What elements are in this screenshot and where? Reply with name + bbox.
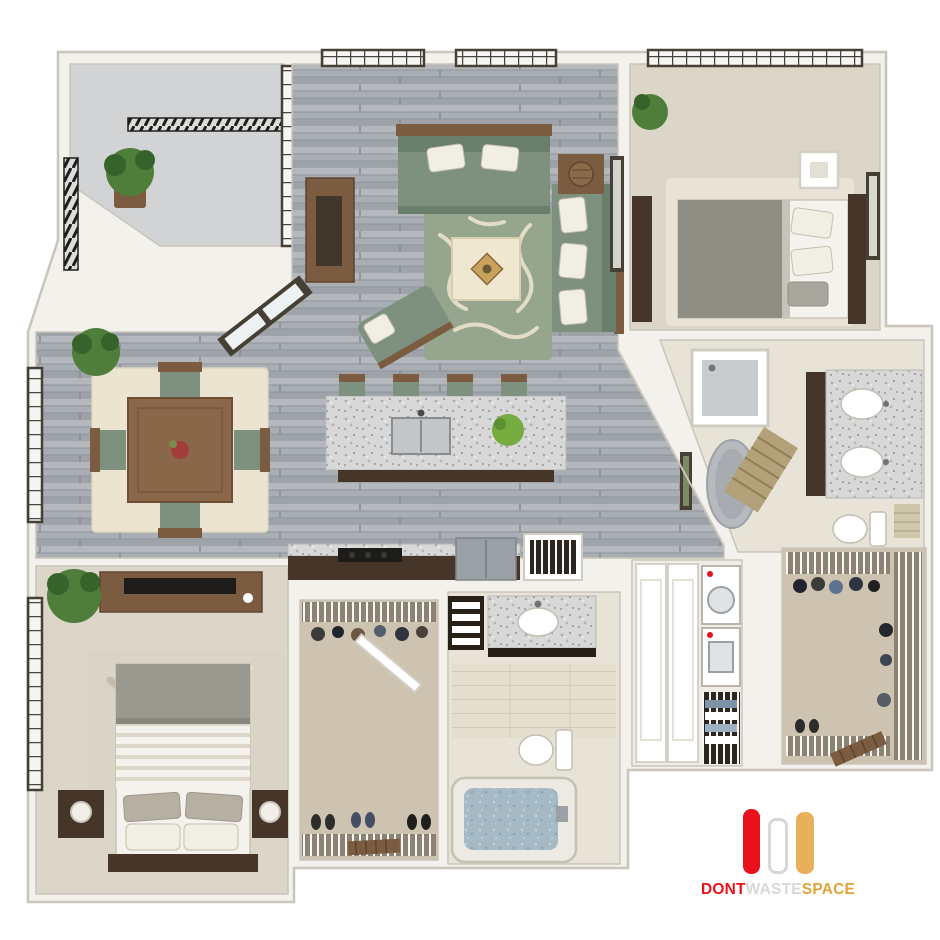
master-bedroom-window [28,598,42,790]
bedroom-2-nightstand [800,152,838,188]
living-window-2 [456,50,556,66]
dontwastespace-logo: DONTWASTESPACE [688,806,868,899]
fridge [456,538,516,580]
hallway-wall-art [680,452,692,510]
bedroom-2-wall-art [866,172,880,260]
dining-set [90,362,270,538]
balcony-railing-left [64,158,78,270]
island-plant [492,414,524,446]
master-headboard [108,854,258,872]
master-nightstand-right [252,790,288,838]
logo-word-space: SPACE [802,881,855,898]
bedroom-2-dresser [632,196,652,322]
linen-shelves [448,596,484,650]
logo-bar-red [743,809,760,874]
master-bed [108,664,258,872]
shoe-rack [348,839,401,856]
bath-tile-floor [452,664,616,738]
living-wall-art [610,156,624,272]
towel-stack [894,504,920,538]
logo-word-dont: DONT [701,881,746,898]
logo-bars [743,806,814,874]
shower [692,350,768,426]
floorplan-svg [0,0,940,940]
dryer [702,628,740,686]
coffee-table [452,238,520,300]
bathroom-2-toilet [833,512,886,546]
bedroom-2-window [648,50,862,66]
double-vanity [806,370,922,498]
bedroom-2-bed [678,194,866,324]
logo-wordmark: DONTWASTESPACE [701,881,855,899]
bathtub [452,778,576,862]
bedroom-2-headboard [848,194,866,324]
side-table-with-basket [558,154,604,194]
master-nightstand-left [58,790,104,838]
laundry-contents [636,564,740,764]
wire-pantry [524,534,582,580]
logo-bar-gold [796,812,814,874]
laundry-shelf [702,692,740,764]
tub-faucet [556,806,568,822]
kitchen-island [326,396,566,482]
dining-fern-plant [72,328,120,376]
master-dresser-tv [100,572,262,612]
master-palm-plant [47,569,101,623]
media-console [306,178,354,282]
balcony-railing [128,118,286,131]
master-vanity [488,596,596,657]
logo-word-waste: WASTE [746,881,802,898]
washer [702,566,740,624]
logo-bar-white [768,818,788,874]
dining-window [28,368,42,522]
sofa [396,124,552,214]
floorplan-render: DONTWASTESPACE [0,0,940,940]
living-window-1 [322,50,424,66]
